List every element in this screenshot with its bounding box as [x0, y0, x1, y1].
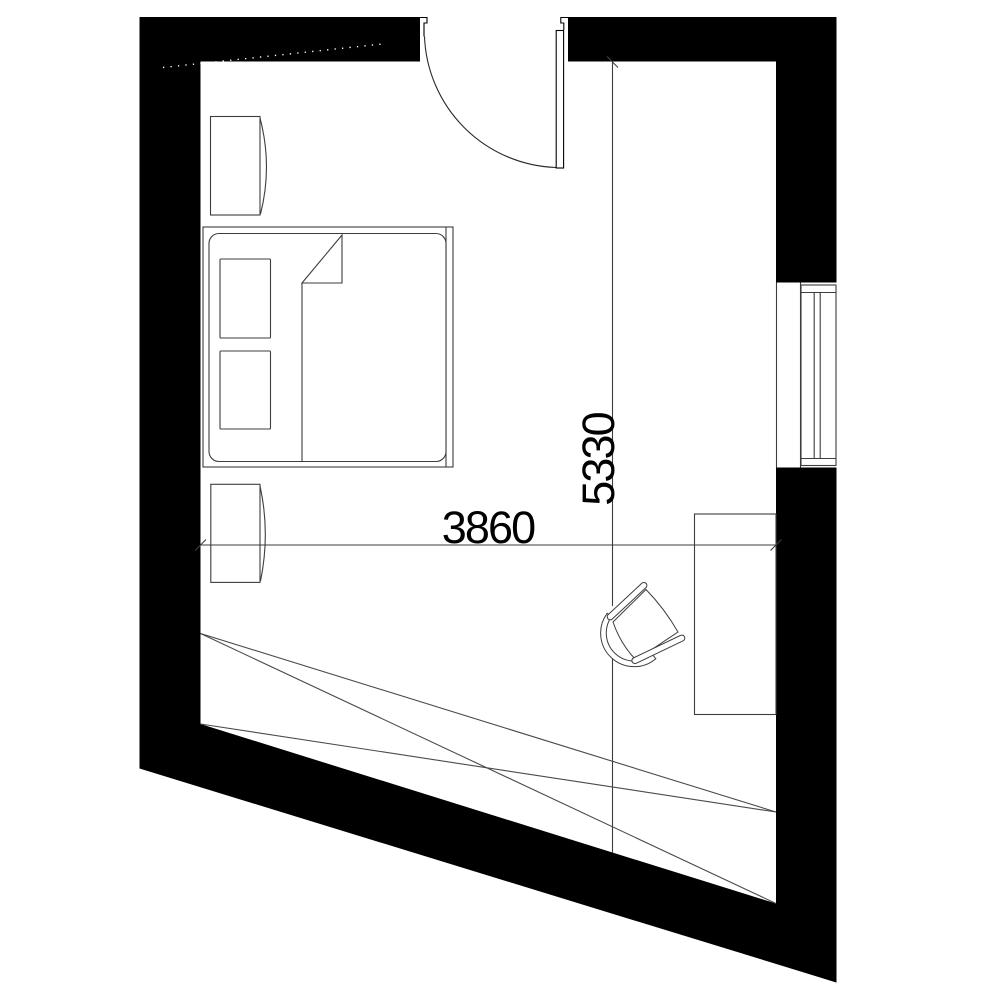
svg-text:3860: 3860: [442, 502, 535, 553]
svg-text:5330: 5330: [573, 412, 624, 505]
